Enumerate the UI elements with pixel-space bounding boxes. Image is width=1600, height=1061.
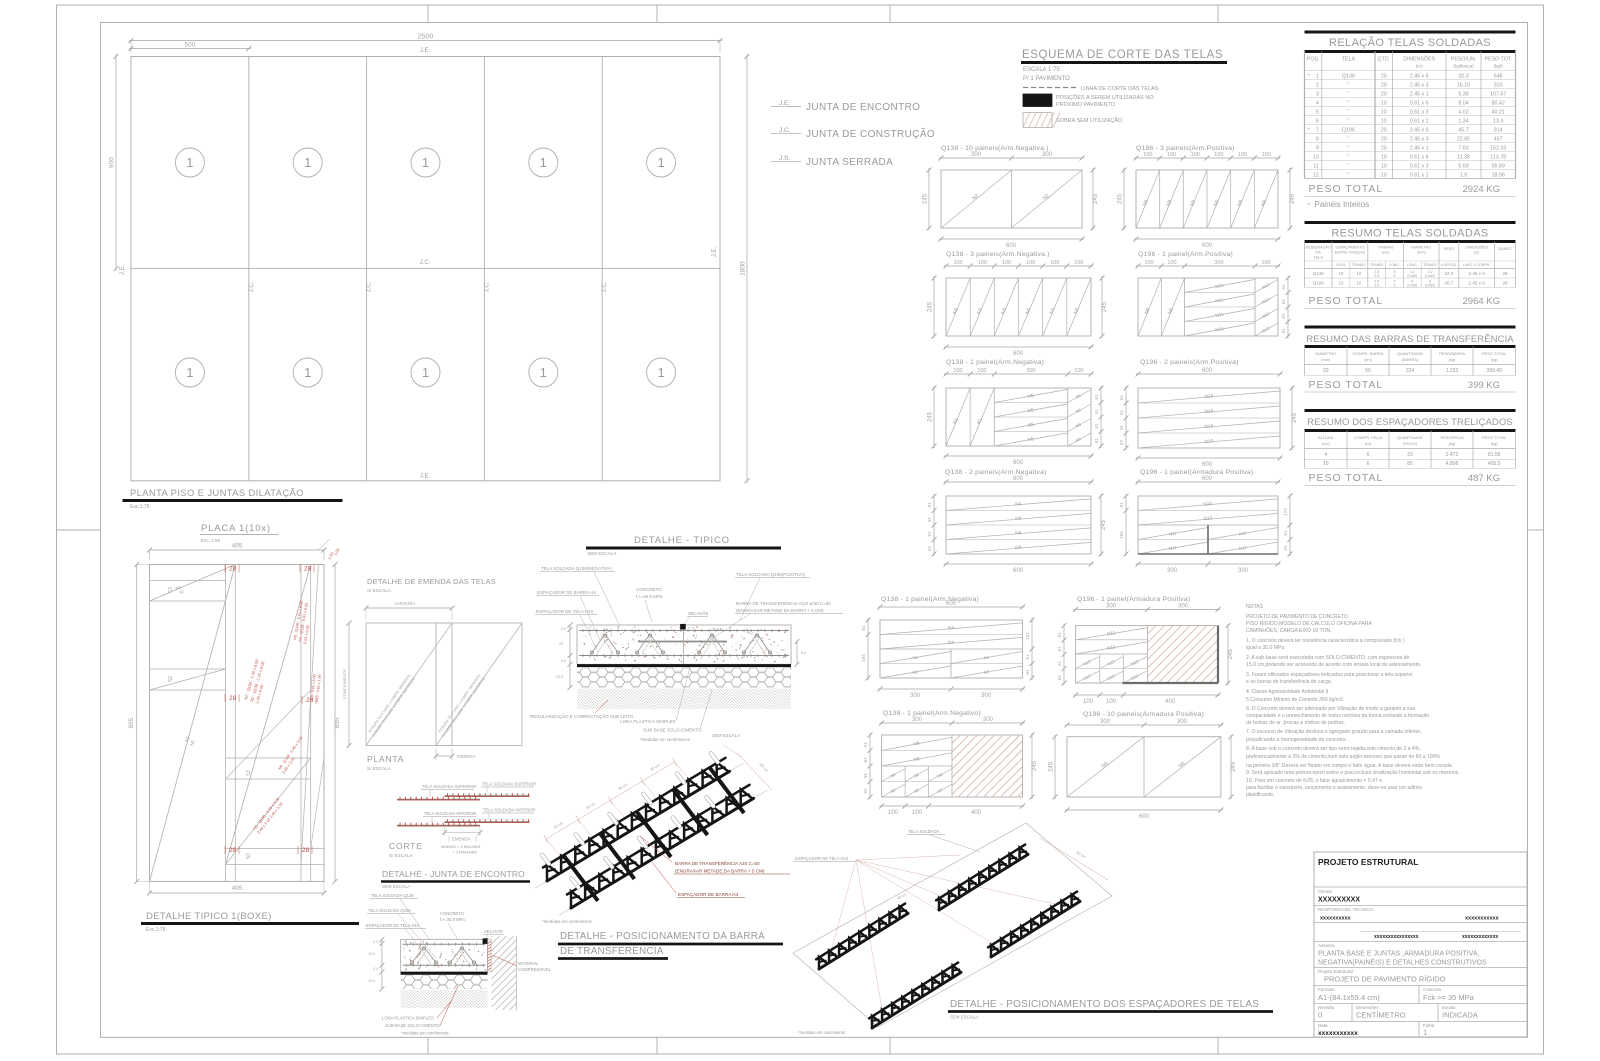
svg-text:PESO TOTAL: PESO TOTAL bbox=[1309, 183, 1384, 195]
svg-text:100: 100 bbox=[1050, 260, 1059, 266]
svg-text:1: 1 bbox=[657, 365, 664, 380]
svg-text:(BARRA): (BARRA) bbox=[1402, 357, 1419, 362]
svg-text:10: 10 bbox=[1381, 154, 1387, 160]
svg-text:61: 61 bbox=[1281, 328, 1286, 334]
svg-text:1.233: 1.233 bbox=[1446, 368, 1459, 374]
svg-text:Q138 - 1 painel(Arm.Negativ: Q138 - 1 painel(Arm.Negativo) bbox=[883, 710, 981, 717]
svg-text:preferencialmente a 3% de: preferencialmente a 3% de cimento,num so… bbox=[1246, 754, 1440, 760]
svg-text:53: 53 bbox=[168, 587, 174, 593]
svg-text:61: 61 bbox=[863, 757, 868, 763]
svg-text:PLANTA PISO E JUNTAS DILAT: PLANTA PISO E JUNTAS DILATAÇÃO bbox=[130, 487, 304, 498]
svg-text:10: 10 bbox=[1356, 271, 1361, 276]
svg-text:ESPAÇADOR DE TELA H10: ESPAÇADOR DE TELA H10 bbox=[536, 609, 594, 614]
svg-text:100: 100 bbox=[978, 260, 987, 266]
svg-text:300: 300 bbox=[910, 693, 921, 699]
svg-text:(m): (m) bbox=[1365, 441, 1372, 446]
svg-text:N4: N4 bbox=[948, 640, 955, 647]
svg-text:Escala: Escala bbox=[1442, 1005, 1456, 1010]
svg-text:TELA: TELA bbox=[1313, 256, 1323, 260]
svg-text:2500: 2500 bbox=[418, 34, 434, 41]
svg-text:DETALHE - POSICIONAMENTO: DETALHE - POSICIONAMENTO DA BARRA bbox=[560, 931, 765, 942]
svg-text:45.7: 45.7 bbox=[1458, 127, 1468, 133]
svg-text:10. Para um concreto de: 10. Para um concreto de fc28, o fator ág… bbox=[1246, 778, 1382, 784]
svg-text:Dimensões: Dimensões bbox=[1356, 1005, 1379, 1010]
svg-text:MINIMO = 2 MALHAS: MINIMO = 2 MALHAS bbox=[441, 844, 481, 849]
svg-text:61: 61 bbox=[1094, 394, 1099, 400]
svg-text:POS.: POS. bbox=[1307, 57, 1320, 63]
svg-text:PESO TOTAL: PESO TOTAL bbox=[1309, 472, 1384, 484]
svg-text:85: 85 bbox=[1407, 461, 1413, 467]
svg-text:9. Será aplicado uma pintu: 9. Será aplicado uma pintura epoxi sobre… bbox=[1246, 770, 1460, 776]
svg-text:61: 61 bbox=[1119, 502, 1124, 508]
svg-text:1: 1 bbox=[186, 365, 193, 380]
svg-text:10: 10 bbox=[1356, 281, 1361, 286]
svg-text:61: 61 bbox=[1025, 669, 1030, 675]
svg-text:5: 5 bbox=[1394, 284, 1396, 288]
svg-text:33: 33 bbox=[1407, 452, 1413, 458]
svg-text:61: 61 bbox=[1119, 410, 1124, 416]
svg-text:895: 895 bbox=[128, 717, 135, 728]
svg-text:POSIÇÕES A SEREM UTILIZADAS: POSIÇÕES A SEREM UTILIZADAS NO bbox=[1056, 94, 1154, 101]
svg-text:100: 100 bbox=[1026, 260, 1035, 266]
svg-text:CAMINHÕES, CARGA EIXO 10 T: CAMINHÕES, CARGA EIXO 10 TON. bbox=[1246, 627, 1332, 634]
svg-text:SEM ESCALA: SEM ESCALA bbox=[587, 551, 617, 556]
svg-text:LONA PLASTICA SIMPLES: LONA PLASTICA SIMPLES bbox=[620, 719, 676, 724]
svg-text:61: 61 bbox=[1283, 530, 1288, 536]
svg-text:0: 0 bbox=[1318, 1011, 1322, 1020]
svg-text:NOTAS: NOTAS bbox=[1246, 604, 1264, 610]
svg-text:62: 62 bbox=[863, 788, 868, 794]
svg-text:Q196 - 1 painel(Arm.Positiv: Q196 - 1 painel(Arm.Positiva) bbox=[1138, 251, 1233, 258]
svg-text:2.45 x 1: 2.45 x 1 bbox=[1410, 145, 1429, 151]
svg-text:2.45 x 1: 2.45 x 1 bbox=[1410, 91, 1429, 97]
svg-text:compacidade e o preenchimen: compacidade e o preenchimento de todos r… bbox=[1246, 713, 1429, 719]
svg-text:J.C.: J.C. bbox=[249, 281, 255, 292]
svg-text:Q138 - 1 painel(Arm.Negativ: Q138 - 1 painel(Arm.Negativa) bbox=[881, 596, 979, 603]
svg-text:20: 20 bbox=[1381, 91, 1387, 97]
svg-text:245: 245 bbox=[1049, 761, 1055, 772]
svg-text:1: 1 bbox=[422, 365, 429, 380]
svg-text:RESUMO DAS BARRAS DE TRANS: RESUMO DAS BARRAS DE TRANSFERÊNCIA bbox=[1306, 334, 1514, 345]
svg-text:LINHA DE CORTE DAS TELAS: LINHA DE CORTE DAS TELAS bbox=[1081, 86, 1159, 92]
svg-text:RESPONSÁVEL TÉCNICO: RESPONSÁVEL TÉCNICO bbox=[1318, 906, 1373, 912]
svg-text:Q196 - 1 painel(Armadura P: Q196 - 1 painel(Armadura Positiva) bbox=[1077, 596, 1190, 603]
svg-text:8.0: 8.0 bbox=[801, 651, 806, 655]
svg-text:N10: N10 bbox=[1204, 408, 1214, 415]
svg-text:600: 600 bbox=[1202, 368, 1213, 374]
svg-text:(kg): (kg) bbox=[1491, 441, 1499, 446]
svg-text:QUANTIDADE: QUANTIDADE bbox=[1397, 351, 1424, 356]
svg-text:2.5: 2.5 bbox=[1374, 284, 1379, 288]
svg-text:22.85: 22.85 bbox=[1457, 136, 1470, 142]
svg-text:ENTRE FIOS(cm): ENTRE FIOS(cm) bbox=[1335, 251, 1366, 255]
svg-text:6. O Concreto deverá ser: 6. O Concreto deverá ser adensado por Vi… bbox=[1246, 706, 1415, 712]
svg-text:xxxxxxxxxxxxx: xxxxxxxxxxxxx bbox=[1462, 934, 1498, 940]
svg-text:62: 62 bbox=[927, 546, 932, 552]
svg-text:245: 245 bbox=[1032, 760, 1038, 771]
svg-text:61: 61 bbox=[1057, 632, 1062, 638]
svg-text:ESPAÇADOR DE BARRA H4: ESPAÇADOR DE BARRA H4 bbox=[678, 892, 739, 897]
svg-text:ESPAÇAMENTO: ESPAÇAMENTO bbox=[1336, 246, 1365, 250]
svg-text:11.38: 11.38 bbox=[1457, 154, 1470, 160]
svg-text:TELA SOLDADA Q138: TELA SOLDADA Q138 bbox=[371, 893, 414, 898]
svg-text:LARG. X COMPR.: LARG. X COMPR. bbox=[1463, 263, 1490, 267]
svg-text:(kgf): (kgf) bbox=[1494, 64, 1504, 69]
svg-text:1. O concreto deverá ter: 1. O concreto deverá ter resistência car… bbox=[1246, 638, 1405, 644]
svg-text:62: 62 bbox=[1057, 675, 1062, 681]
svg-text:2.45 x 3: 2.45 x 3 bbox=[1410, 136, 1429, 142]
svg-text:TELA SOLDADA INFERIOR: TELA SOLDADA INFERIOR bbox=[483, 808, 535, 813]
svg-text:15.0 cm,podendo ser acresci: 15.0 cm,podendo ser acrescido de acordo … bbox=[1246, 662, 1421, 668]
svg-text:32.3: 32.3 bbox=[1458, 73, 1468, 79]
svg-text:300: 300 bbox=[981, 693, 992, 699]
svg-text:TELA SOLDADA: TELA SOLDADA bbox=[908, 829, 940, 834]
svg-text:J.E.: J.E. bbox=[420, 473, 431, 479]
svg-text:(ENGRAXAR METADE DA BARRA: (ENGRAXAR METADE DA BARRA + 5 CM) bbox=[736, 608, 824, 613]
svg-text:S/ ESCALA: S/ ESCALA bbox=[367, 588, 392, 593]
svg-text:10: 10 bbox=[1381, 109, 1387, 115]
svg-text:(kg): (kg) bbox=[1449, 441, 1457, 446]
svg-text:245: 245 bbox=[1290, 193, 1296, 204]
svg-text:600: 600 bbox=[1202, 476, 1213, 482]
svg-text:184: 184 bbox=[861, 654, 866, 662]
svg-text:SUB-BASE SOLO-CIMENTO: SUB-BASE SOLO-CIMENTO bbox=[643, 728, 702, 733]
svg-text:S/ ESCALA: S/ ESCALA bbox=[367, 766, 392, 771]
svg-text:TRANSV: TRANSV bbox=[1370, 263, 1384, 267]
svg-text:0.61 x 1: 0.61 x 1 bbox=[1410, 118, 1429, 124]
svg-text:100: 100 bbox=[1074, 368, 1083, 374]
svg-text:300: 300 bbox=[1106, 604, 1117, 610]
svg-text:323: 323 bbox=[1494, 82, 1503, 88]
svg-text:Q196: Q196 bbox=[1342, 127, 1355, 133]
svg-text:28: 28 bbox=[229, 566, 237, 573]
svg-text:COMPR. PEÇA: COMPR. PEÇA bbox=[1354, 435, 1382, 440]
svg-text:28: 28 bbox=[306, 697, 314, 704]
svg-text:2.0: 2.0 bbox=[373, 940, 378, 944]
svg-text:(CA60): (CA60) bbox=[1425, 284, 1435, 288]
svg-text:SUB-BASE SOLO-CIMENTO: SUB-BASE SOLO-CIMENTO bbox=[385, 1023, 440, 1028]
svg-text:1: 1 bbox=[540, 365, 547, 380]
svg-text:12: 12 bbox=[1313, 172, 1319, 178]
svg-text:1.9: 1.9 bbox=[1460, 172, 1467, 178]
svg-text:100: 100 bbox=[1074, 260, 1083, 266]
svg-text:CONCRETO: CONCRETO bbox=[636, 587, 662, 592]
svg-text:PLANTA: PLANTA bbox=[367, 754, 404, 764]
svg-text:61: 61 bbox=[927, 531, 932, 537]
svg-text:DETALHE TIPICO 1(BOXE): DETALHE TIPICO 1(BOXE) bbox=[146, 911, 272, 922]
svg-text:EMENDA: EMENDA bbox=[457, 754, 476, 759]
svg-text:4.808: 4.808 bbox=[1446, 461, 1459, 467]
svg-text:600: 600 bbox=[1013, 351, 1024, 357]
svg-text:DIAMETRO: DIAMETRO bbox=[1411, 246, 1431, 250]
svg-text:61: 61 bbox=[861, 625, 866, 631]
svg-text:11: 11 bbox=[1313, 163, 1319, 169]
svg-text:61: 61 bbox=[1094, 423, 1099, 429]
svg-text:(CA60): (CA60) bbox=[1425, 274, 1435, 278]
svg-text:0.61 x 1: 0.61 x 1 bbox=[1410, 172, 1429, 178]
svg-text:JUNTA DE CONSTRUÇÃO: JUNTA DE CONSTRUÇÃO bbox=[806, 127, 935, 140]
svg-text:N10: N10 bbox=[1203, 516, 1213, 523]
svg-text:245: 245 bbox=[1292, 412, 1298, 423]
svg-text:53: 53 bbox=[168, 676, 174, 682]
svg-text:J.C.: J.C. bbox=[484, 281, 490, 292]
svg-text:100: 100 bbox=[1143, 152, 1152, 158]
svg-text:QUANTIDADE: QUANTIDADE bbox=[1397, 435, 1424, 440]
svg-text:PROJETO ESTRUTURAL: PROJETO ESTRUTURAL bbox=[1318, 857, 1418, 867]
svg-text:PESO TOTAL: PESO TOTAL bbox=[1482, 351, 1507, 356]
svg-text:Projeto Estrutural: Projeto Estrutural bbox=[1318, 969, 1353, 974]
svg-text:245: 245 bbox=[1228, 649, 1234, 660]
svg-text:CONCRETO: CONCRETO bbox=[440, 911, 465, 916]
svg-text:TELA: TELA bbox=[1342, 57, 1356, 63]
svg-text:TELA SOLDADA SUPERIOR: TELA SOLDADA SUPERIOR bbox=[482, 782, 536, 787]
svg-text:100: 100 bbox=[1191, 152, 1200, 158]
svg-text:100: 100 bbox=[888, 810, 899, 816]
svg-text:": " bbox=[1347, 136, 1349, 142]
svg-text:245: 245 bbox=[928, 411, 934, 422]
svg-text:28: 28 bbox=[229, 847, 237, 854]
svg-text:600: 600 bbox=[1202, 243, 1213, 249]
svg-text:DETALHE - TIPICO: DETALHE - TIPICO bbox=[634, 535, 730, 546]
svg-text:600: 600 bbox=[1202, 462, 1213, 468]
svg-text:40.21: 40.21 bbox=[1492, 109, 1505, 115]
svg-text:245: 245 bbox=[1102, 301, 1108, 312]
svg-text:COMPRIMENTO: COMPRIMENTO bbox=[342, 669, 347, 699]
svg-text:300: 300 bbox=[1214, 260, 1223, 266]
svg-text:DIMENSÕES: DIMENSÕES bbox=[1403, 56, 1435, 63]
svg-text:(mm): (mm) bbox=[1417, 251, 1427, 255]
svg-text:A1-(84.1x59.4 cm): A1-(84.1x59.4 cm) bbox=[1318, 993, 1380, 1002]
svg-text:EMENDA: EMENDA bbox=[452, 837, 471, 842]
svg-text:61: 61 bbox=[927, 502, 932, 508]
svg-text:405.5: 405.5 bbox=[1488, 461, 1501, 467]
svg-text:4.02: 4.02 bbox=[1458, 109, 1468, 115]
svg-text:61: 61 bbox=[1094, 438, 1099, 444]
svg-text:2.45 x 6: 2.45 x 6 bbox=[1410, 73, 1429, 79]
svg-text:100: 100 bbox=[977, 368, 986, 374]
svg-text:(CA60): (CA60) bbox=[1407, 284, 1417, 288]
svg-text:(CA60): (CA60) bbox=[1407, 274, 1417, 278]
svg-text:TRANSV: TRANSV bbox=[1352, 263, 1366, 267]
svg-text:107.67: 107.67 bbox=[1490, 91, 1506, 97]
svg-text:2.45 x 6: 2.45 x 6 bbox=[1468, 271, 1485, 276]
svg-text:1: 1 bbox=[1423, 1028, 1427, 1037]
svg-text:100: 100 bbox=[912, 810, 923, 816]
svg-text:COMPRESSIVEL: COMPRESSIVEL bbox=[518, 967, 552, 972]
svg-text:28: 28 bbox=[304, 566, 312, 573]
svg-text:245: 245 bbox=[1101, 519, 1107, 530]
svg-text:": " bbox=[1347, 172, 1349, 178]
svg-text:Q196 - 10 paineis(Armadura: Q196 - 10 paineis(Armadura Positiva) bbox=[1083, 711, 1204, 718]
svg-text:Formato: Formato bbox=[1318, 987, 1335, 992]
svg-text:TELA SOLDADA Q196(POSITIVA): TELA SOLDADA Q196(POSITIVA) bbox=[736, 572, 806, 577]
svg-text:TRANSV: TRANSV bbox=[1423, 263, 1437, 267]
svg-text:4: 4 bbox=[1324, 452, 1327, 458]
svg-text:2.5: 2.5 bbox=[1374, 274, 1379, 278]
svg-text:184: 184 bbox=[1119, 531, 1124, 539]
svg-text:28: 28 bbox=[1502, 271, 1508, 276]
svg-text:53: 53 bbox=[246, 770, 252, 776]
svg-text:600: 600 bbox=[1013, 568, 1024, 574]
svg-text:45.7: 45.7 bbox=[1444, 281, 1453, 286]
svg-text:28: 28 bbox=[302, 847, 310, 854]
svg-text:8.04: 8.04 bbox=[1458, 100, 1468, 106]
svg-text:DESIGNAÇÃO: DESIGNAÇÃO bbox=[1306, 245, 1331, 250]
svg-text:PLANTA BASE E JUNTAS ,ARMAD: PLANTA BASE E JUNTAS ,ARMADURA POSITIVA, bbox=[1318, 951, 1479, 958]
svg-text:(ENGRAXAR METADE DA BARRA: (ENGRAXAR METADE DA BARRA + 5 CM) bbox=[675, 869, 765, 874]
svg-text:245: 245 bbox=[1118, 193, 1124, 204]
svg-text:(m): (m) bbox=[1416, 64, 1423, 69]
svg-text:1: 1 bbox=[186, 155, 193, 170]
svg-text:300: 300 bbox=[1100, 719, 1111, 725]
svg-text:J.C.: J.C. bbox=[367, 281, 373, 292]
svg-text:62: 62 bbox=[1119, 440, 1124, 446]
svg-text:RESUMO TELAS SOLDADAS: RESUMO TELAS SOLDADAS bbox=[1331, 228, 1488, 240]
svg-text:13.4: 13.4 bbox=[1493, 118, 1503, 124]
svg-text:PESO TOT.: PESO TOT. bbox=[1484, 57, 1511, 63]
svg-text:28: 28 bbox=[229, 695, 237, 702]
svg-text:Q196 - 1 painel(Armadura P: Q196 - 1 painel(Armadura Positiva) bbox=[1140, 469, 1253, 476]
svg-text:PESO/BARRA: PESO/BARRA bbox=[1439, 351, 1465, 356]
svg-text:ESQUEMA DE CORTE DAS TELAS: ESQUEMA DE CORTE DAS TELAS bbox=[1022, 49, 1223, 61]
svg-text:399.49: 399.49 bbox=[1487, 368, 1503, 374]
svg-text:Cliente: Cliente bbox=[1318, 889, 1333, 894]
svg-text:TELA SOLDADA SUPERIOR: TELA SOLDADA SUPERIOR bbox=[422, 784, 476, 789]
svg-text:prejudicando a homogeneidade: prejudicando a homogeneidade do concreto… bbox=[1246, 737, 1347, 743]
svg-text:TELA SOLDADA Q138(NEGATIVA): TELA SOLDADA Q138(NEGATIVA) bbox=[541, 566, 612, 571]
svg-text:400: 400 bbox=[1165, 699, 1176, 705]
svg-text:9: 9 bbox=[1316, 145, 1319, 151]
svg-text:0.61 x 6: 0.61 x 6 bbox=[1410, 154, 1429, 160]
svg-text:PESO TOTAL: PESO TOTAL bbox=[1309, 295, 1384, 307]
svg-text:PLACA 1(10x): PLACA 1(10x) bbox=[201, 523, 271, 534]
svg-text:J.C.: J.C. bbox=[602, 281, 608, 292]
svg-text:50: 50 bbox=[1365, 368, 1371, 374]
svg-text:245: 245 bbox=[1093, 193, 1099, 204]
svg-text:6: 6 bbox=[1367, 461, 1370, 467]
svg-text:PESO TOTAL: PESO TOTAL bbox=[1309, 379, 1384, 391]
svg-text:QUANT.: QUANT. bbox=[1498, 247, 1512, 251]
svg-text:": " bbox=[1347, 163, 1349, 169]
svg-text:BARRA DE TRANSFERÊNCIA A20: BARRA DE TRANSFERÊNCIA A20 C=50 bbox=[675, 859, 760, 866]
svg-text:32.3: 32.3 bbox=[1444, 271, 1453, 276]
svg-text:f >=35.0 MPa: f >=35.0 MPa bbox=[636, 594, 663, 599]
svg-text:300: 300 bbox=[1026, 368, 1035, 374]
svg-text:ESCALA 1:75: ESCALA 1:75 bbox=[1023, 67, 1060, 73]
svg-text:Assunto:: Assunto: bbox=[1318, 943, 1336, 948]
svg-text:Q138 - 1 painel(Arm.Negativ: Q138 - 1 painel(Arm.Negativa) bbox=[946, 359, 1044, 366]
svg-text:20: 20 bbox=[1381, 82, 1387, 88]
svg-text:15.0: 15.0 bbox=[368, 952, 375, 956]
svg-text:ESPAÇADOR DE TELA H10: ESPAÇADOR DE TELA H10 bbox=[795, 856, 849, 861]
svg-text:Fck >= 35 MPa: Fck >= 35 MPa bbox=[1423, 993, 1475, 1002]
svg-text:61: 61 bbox=[1281, 313, 1286, 319]
svg-text:600: 600 bbox=[1013, 476, 1024, 482]
svg-text:100: 100 bbox=[953, 368, 962, 374]
svg-text:113.78: 113.78 bbox=[1490, 154, 1506, 160]
svg-text:RELAÇÃO TELAS SOLDADAS: RELAÇÃO TELAS SOLDADAS bbox=[1329, 36, 1491, 49]
svg-text:*medidas em centímetros: *medidas em centímetros bbox=[542, 919, 593, 924]
svg-text:DIÂMETRO: DIÂMETRO bbox=[1315, 351, 1336, 356]
svg-text:61: 61 bbox=[1025, 654, 1030, 660]
svg-text:SELANTE: SELANTE bbox=[688, 611, 709, 616]
svg-text:": " bbox=[1347, 118, 1349, 124]
svg-text:100: 100 bbox=[1238, 152, 1247, 158]
svg-text:DETALHE DE EMENDA DAS TELA: DETALHE DE EMENDA DAS TELAS bbox=[367, 577, 496, 586]
svg-text:152.33: 152.33 bbox=[1490, 145, 1506, 151]
svg-text:(kgf/peça): (kgf/peça) bbox=[1453, 64, 1474, 69]
svg-text:10: 10 bbox=[1381, 100, 1387, 106]
svg-text:KG/PEÇA: KG/PEÇA bbox=[1441, 263, 1457, 267]
svg-text:5: 5 bbox=[1394, 274, 1396, 278]
svg-text:10: 10 bbox=[1323, 461, 1329, 467]
svg-text:ALTURA: ALTURA bbox=[1318, 435, 1334, 440]
svg-text:3. Foram utilizados espaçad: 3. Foram utilizados espaçadores treliçad… bbox=[1246, 672, 1413, 678]
svg-text:122: 122 bbox=[1025, 632, 1030, 640]
svg-text:N4: N4 bbox=[1015, 516, 1022, 522]
svg-text:5.Consumo Mínimo de Cimento: 5.Consumo Mínimo de Cimento 350 kg/m3 bbox=[1246, 697, 1343, 703]
svg-text:495: 495 bbox=[232, 543, 243, 550]
svg-text:3.0: 3.0 bbox=[373, 967, 378, 971]
svg-text:Esc.1:75: Esc.1:75 bbox=[146, 927, 166, 933]
svg-text:100: 100 bbox=[1167, 260, 1176, 266]
svg-text:0.61 x 6: 0.61 x 6 bbox=[1410, 100, 1429, 106]
svg-text:J.E.: J.E. bbox=[420, 48, 431, 54]
svg-text:1: 1 bbox=[422, 155, 429, 170]
svg-text:0.61 x 3: 0.61 x 3 bbox=[1410, 163, 1429, 169]
svg-text:J.E.: J.E. bbox=[779, 100, 790, 107]
svg-text:TELA SOLDADA INFERIOR: TELA SOLDADA INFERIOR bbox=[424, 811, 476, 816]
svg-text:600: 600 bbox=[1006, 243, 1017, 249]
svg-text:f >=35.0 MPa: f >=35.0 MPa bbox=[440, 917, 465, 922]
svg-text:10: 10 bbox=[1339, 281, 1344, 286]
svg-text:20: 20 bbox=[1381, 127, 1387, 133]
svg-text:495: 495 bbox=[232, 885, 243, 892]
svg-text:20: 20 bbox=[1323, 368, 1329, 374]
svg-text:LARGURA: LARGURA bbox=[395, 601, 416, 606]
svg-text:plastificante.: plastificante. bbox=[1246, 792, 1274, 798]
svg-text:15.0: 15.0 bbox=[368, 979, 375, 983]
svg-text:Q138: Q138 bbox=[1342, 73, 1355, 79]
svg-text:SEM ESCALA: SEM ESCALA bbox=[950, 1015, 978, 1020]
svg-text:J.C.: J.C. bbox=[420, 260, 431, 266]
svg-text:SEM ESCALA: SEM ESCALA bbox=[382, 884, 410, 889]
svg-text:18.96: 18.96 bbox=[1492, 172, 1505, 178]
svg-text:PROJETO DE PAVIMENTO DE CO: PROJETO DE PAVIMENTO DE CONCRETO bbox=[1246, 614, 1348, 620]
svg-text:61: 61 bbox=[1281, 284, 1286, 290]
svg-text:+ 3 FRANJAS: + 3 FRANJAS bbox=[452, 850, 477, 855]
svg-text:N4: N4 bbox=[1015, 545, 1022, 551]
svg-text:*medidas em centímetros: *medidas em centímetros bbox=[640, 737, 691, 742]
svg-text:LONG.: LONG. bbox=[1407, 263, 1418, 267]
svg-text:400: 400 bbox=[971, 810, 982, 816]
svg-text:xxxxxxxxxxxxxxxx: xxxxxxxxxxxxxxxx bbox=[1374, 934, 1419, 940]
svg-text:500: 500 bbox=[184, 42, 195, 49]
svg-text:61: 61 bbox=[1057, 646, 1062, 652]
svg-text:5: 5 bbox=[1316, 109, 1319, 115]
svg-text:300: 300 bbox=[971, 152, 982, 158]
svg-text:7: 7 bbox=[1316, 127, 1319, 133]
svg-text:INDICADA: INDICADA bbox=[1442, 1011, 1478, 1020]
svg-text:J.E.: J.E. bbox=[712, 247, 718, 258]
svg-text:(mm): (mm) bbox=[1321, 357, 1331, 362]
svg-text:61: 61 bbox=[1119, 395, 1124, 401]
svg-text:J.C.: J.C. bbox=[779, 127, 791, 134]
svg-text:LONG.: LONG. bbox=[1336, 263, 1347, 267]
svg-text:324: 324 bbox=[1406, 368, 1415, 374]
svg-text:2: 2 bbox=[1316, 82, 1319, 88]
svg-text:2.472: 2.472 bbox=[1446, 452, 1459, 458]
